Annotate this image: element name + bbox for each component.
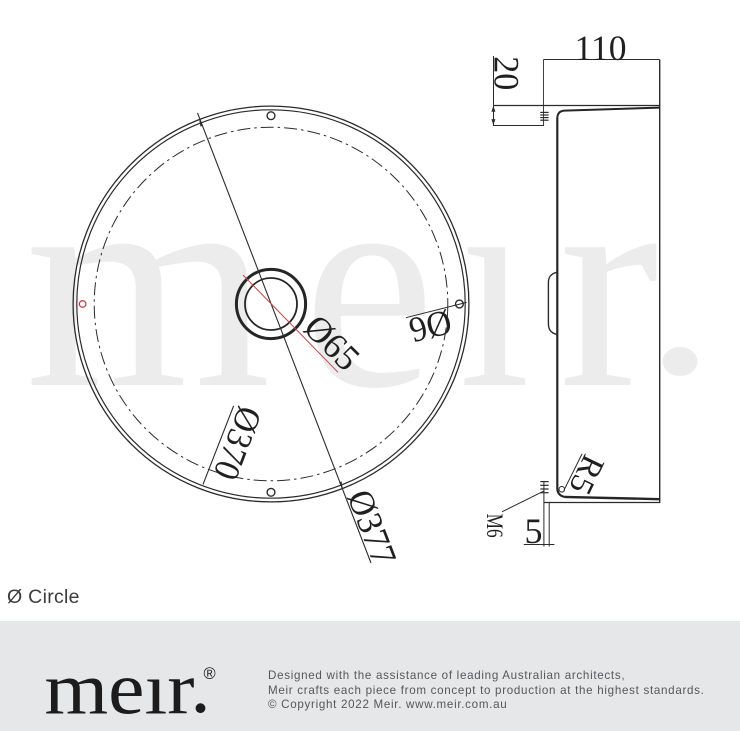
- svg-text:R5: R5: [561, 449, 610, 500]
- svg-text:meır: meır: [45, 649, 195, 731]
- svg-text:M6: M6: [481, 514, 507, 538]
- svg-text:5: 5: [525, 511, 543, 551]
- svg-text:Ø377: Ø377: [340, 484, 405, 570]
- svg-text:r: r: [559, 118, 659, 450]
- svg-text:110: 110: [575, 28, 627, 68]
- svg-text:ı: ı: [459, 118, 530, 450]
- svg-text:20: 20: [487, 56, 527, 90]
- svg-text:m: m: [25, 118, 271, 450]
